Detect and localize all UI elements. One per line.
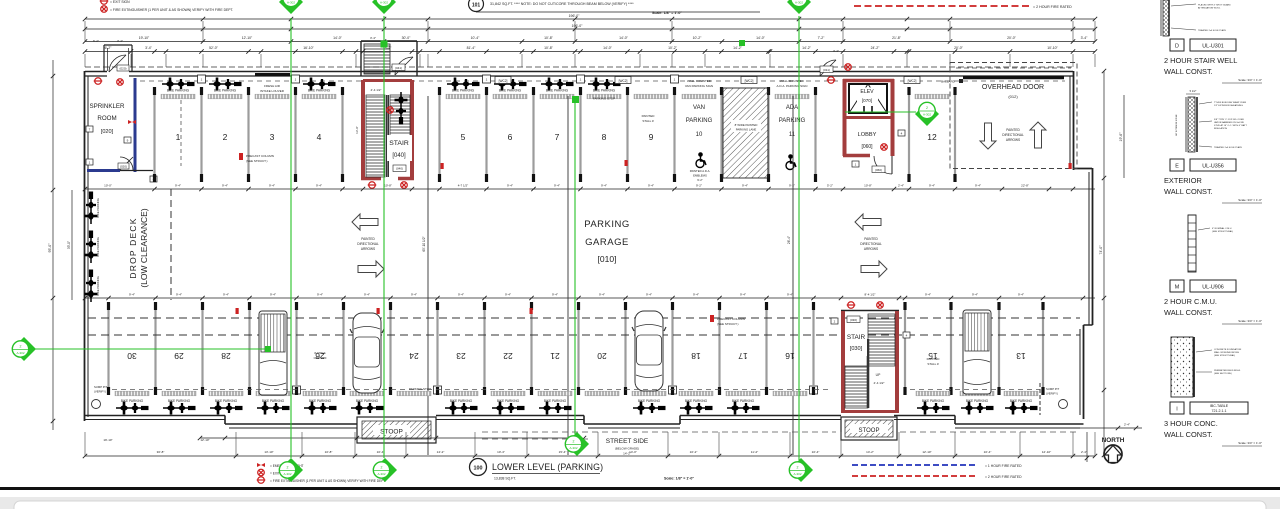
svg-text:VAPOR BARRIER ON 2x6 WD: VAPOR BARRIER ON 2x6 WD (1214, 121, 1245, 124)
svg-text:52'-0": 52'-0" (209, 46, 218, 50)
svg-text:PAINTED: PAINTED (361, 237, 375, 241)
svg-text:10'-8": 10'-8" (325, 450, 333, 454)
svg-text:14'-2": 14'-2" (866, 450, 874, 454)
svg-text:2 HOUR C.M.U.: 2 HOUR C.M.U. (1164, 297, 1217, 306)
svg-text:12: 12 (927, 132, 937, 142)
svg-text:6" NOMINAL C.M.U.: 6" NOMINAL C.M.U. (1212, 227, 1232, 230)
svg-text:9'-4": 9'-4" (223, 293, 229, 297)
svg-text:PERIMETER RIGID INSUL: PERIMETER RIGID INSUL (1214, 370, 1241, 372)
svg-text:11: 11 (789, 132, 796, 138)
svg-text:21: 21 (550, 351, 560, 361)
svg-text:100: 100 (474, 466, 483, 472)
svg-text:(SEE STRUCTURAL): (SEE STRUCTURAL) (1212, 230, 1233, 233)
svg-text:WALL MOUNTED: WALL MOUNTED (687, 79, 712, 83)
svg-text:9'-4": 9'-4" (787, 293, 793, 297)
svg-text:14'-0": 14'-0" (629, 450, 637, 454)
svg-text:9'-4": 9'-4" (316, 184, 322, 188)
svg-text:UL-U356: UL-U356 (1202, 164, 1224, 170)
svg-text:10'-0": 10'-0" (104, 184, 112, 188)
svg-text:8: 8 (602, 132, 607, 142)
svg-text:10'-2": 10'-2" (693, 36, 702, 40)
svg-text:DIRECTIONAL: DIRECTIONAL (860, 242, 882, 246)
svg-text:Scale: 3/4" = 1'-0": Scale: 3/4" = 1'-0" (1238, 319, 1262, 323)
svg-text:PARKING STOP: PARKING STOP (593, 97, 615, 101)
svg-text:PAINTED A.D.A.: PAINTED A.D.A. (690, 169, 711, 173)
svg-text:4'-4 1/2": 4'-4 1/2" (874, 381, 885, 385)
svg-text:16: 16 (785, 351, 795, 361)
svg-text:20: 20 (597, 351, 607, 361)
svg-text:30'-0": 30'-0" (402, 36, 411, 40)
svg-text:NORTH: NORTH (1102, 437, 1125, 444)
svg-text:PLACED WITH 4" SHOT GUARD: PLACED WITH 4" SHOT GUARD (1198, 4, 1231, 7)
svg-text:18: 18 (691, 351, 701, 361)
svg-text:[030]: [030] (850, 346, 863, 352)
svg-text:ARROWS: ARROWS (864, 247, 878, 251)
svg-text:BIKE PARKING: BIKE PARKING (593, 89, 616, 93)
svg-text:9'-4": 9'-4" (1018, 293, 1024, 297)
svg-text:ARROWS: ARROWS (1006, 138, 1020, 142)
svg-text:BIKE PARKING: BIKE PARKING (499, 89, 522, 93)
svg-text:DROP DECK: DROP DECK (128, 217, 138, 278)
svg-text:2'-4": 2'-4" (1124, 423, 1130, 427)
svg-text:PARKING: PARKING (584, 219, 630, 230)
svg-text:4: 4 (317, 132, 322, 142)
svg-text:9'-4": 9'-4" (740, 293, 746, 297)
svg-text:9'-4": 9'-4" (601, 184, 607, 188)
svg-text:21'-8": 21'-8" (892, 36, 901, 40)
svg-text:5/8" TYPE 'C' GYP. BD. OVER: 5/8" TYPE 'C' GYP. BD. OVER (1214, 119, 1244, 121)
svg-text:ARROWS: ARROWS (361, 247, 375, 251)
svg-text:2 HOUR STAIR WELL: 2 HOUR STAIR WELL (1164, 56, 1237, 65)
svg-text:(040): (040) (396, 167, 403, 171)
svg-text:16'-10": 16'-10" (303, 46, 314, 50)
svg-text:STALL #: STALL # (642, 119, 654, 123)
svg-text:DIRECTIONAL: DIRECTIONAL (1002, 133, 1024, 137)
svg-text:PRECAST COLUMN: PRECAST COLUMN (717, 317, 745, 321)
svg-text:IBC-TABLE: IBC-TABLE (1210, 404, 1229, 408)
svg-text:ROOM: ROOM (97, 115, 116, 122)
svg-text:22: 22 (503, 351, 513, 361)
svg-text:FRESH AIR: FRESH AIR (264, 84, 281, 88)
svg-text:(SEE STRUCT.): (SEE STRUCT.) (717, 322, 739, 326)
svg-text:19'-10": 19'-10" (103, 438, 112, 442)
svg-text:81'-4": 81'-4" (467, 46, 476, 50)
svg-text:9'-4": 9'-4" (742, 184, 748, 188)
svg-text:TYVEK BUILDING WRAP OVER: TYVEK BUILDING WRAP OVER (1214, 101, 1246, 104)
svg-text:= EXIT SIGN: = EXIT SIGN (110, 0, 130, 4)
svg-text:= 2 HOUR FIRE RATED: = 2 HOUR FIRE RATED (1033, 5, 1072, 9)
svg-text:M: M (1175, 285, 1180, 291)
svg-text:9'-4": 9'-4" (175, 184, 181, 188)
svg-text:STOOP: STOOP (859, 428, 880, 434)
svg-text:9'-4": 9'-4" (693, 293, 699, 297)
svg-text:[070]: [070] (862, 98, 872, 103)
svg-text:(SEE SECTIONS): (SEE SECTIONS) (1214, 373, 1232, 375)
svg-text:DIRECTIONAL: DIRECTIONAL (357, 242, 379, 246)
svg-text:14'-2": 14'-2" (437, 450, 445, 454)
svg-text:(SEE STRUCTURAL): (SEE STRUCTURAL) (1214, 354, 1235, 357)
svg-text:PARKING: PARKING (779, 118, 806, 124)
svg-text:[060]: [060] (861, 144, 873, 150)
svg-text:6'-2": 6'-2" (105, 46, 113, 50)
svg-text:STALL #: STALL # (314, 351, 326, 355)
svg-text:10'-8": 10'-8" (864, 184, 872, 188)
svg-text:BIKE PARKING: BIKE PARKING (452, 89, 475, 93)
svg-text:12'-10": 12'-10" (922, 450, 931, 454)
svg-text:PAINTED: PAINTED (864, 237, 878, 241)
svg-text:12'-10": 12'-10" (200, 438, 209, 442)
svg-text:12'-10": 12'-10" (1042, 450, 1051, 454)
svg-text:(VERIFY): (VERIFY) (94, 390, 106, 394)
svg-text:5 1/2": 5 1/2" (1190, 89, 1197, 93)
svg-text:WALL CONST.: WALL CONST. (1164, 308, 1213, 317)
svg-text:23: 23 (456, 351, 466, 361)
svg-text:20'-0": 20'-0" (1007, 36, 1016, 40)
svg-text:6'-2": 6'-2" (93, 39, 99, 43)
svg-text:BIT EXTERIOR SCENE: BIT EXTERIOR SCENE (1176, 114, 1178, 136)
svg-text:PAINTED: PAINTED (642, 114, 656, 118)
svg-text:3'-4": 3'-4" (117, 39, 123, 43)
svg-text:9'-4": 9'-4" (599, 293, 605, 297)
svg-text:13,838 SQ.FT.: 13,838 SQ.FT. (494, 477, 516, 481)
svg-text:[WC2]: [WC2] (619, 79, 628, 83)
svg-text:PRECAST COLUMN: PRECAST COLUMN (246, 154, 274, 158)
svg-text:BIKE PARKING: BIKE PARKING (546, 89, 569, 93)
svg-text:STAIR: STAIR (389, 140, 409, 147)
svg-text:22'-8": 22'-8" (1021, 184, 1029, 188)
svg-text:BIKE PARKING: BIKE PARKING (96, 276, 100, 296)
svg-text:= 2 HOUR FIRE RATED: = 2 HOUR FIRE RATED (985, 475, 1022, 479)
svg-text:10'-4": 10'-4" (984, 450, 992, 454)
svg-text:PARKING: PARKING (686, 118, 713, 124)
svg-text:10'-4": 10'-4" (497, 450, 505, 454)
svg-text:3'-4": 3'-4" (833, 49, 839, 53)
svg-text:Scale: 3/4" = 1'-0": Scale: 3/4" = 1'-0" (1238, 441, 1262, 445)
svg-text:= FIRE EXTINGUISHER (1 PER UNI: = FIRE EXTINGUISHER (1 PER UNIT & AS SHO… (110, 8, 233, 12)
svg-text:12'-10": 12'-10" (242, 36, 253, 40)
svg-text:101: 101 (472, 3, 481, 9)
svg-text:10'-8": 10'-8" (384, 184, 392, 188)
svg-text:13'-10": 13'-10" (264, 450, 273, 454)
svg-text:(011): (011) (823, 68, 830, 72)
svg-text:196'-0": 196'-0" (569, 14, 581, 18)
svg-text:[010]: [010] (598, 254, 617, 264)
svg-text:LOBBY: LOBBY (858, 132, 877, 138)
svg-text:10'-4": 10'-4" (471, 36, 480, 40)
svg-text:[WC2]: [WC2] (499, 79, 508, 83)
svg-text:E: E (1175, 164, 1179, 170)
svg-text:(020): (020) (119, 67, 126, 71)
svg-text:95'-0": 95'-0" (48, 243, 52, 253)
svg-text:6: 6 (508, 132, 513, 142)
svg-text:28: 28 (221, 351, 231, 361)
svg-text:Scale: 3/4" = 1'-0": Scale: 3/4" = 1'-0" (1238, 78, 1262, 82)
svg-text:(LOW CLEARANCE): (LOW CLEARANCE) (139, 208, 149, 288)
svg-text:2: 2 (223, 132, 228, 142)
svg-text:9'-4": 9'-4" (972, 293, 978, 297)
svg-text:5: 5 (461, 132, 466, 142)
svg-text:(012): (012) (1008, 94, 1018, 99)
svg-text:3'-4": 3'-4" (145, 46, 153, 50)
svg-text:Scale: 1/8" = 1'-0": Scale: 1/8" = 1'-0" (652, 11, 682, 15)
svg-text:10'-10": 10'-10" (1047, 46, 1058, 50)
svg-text:9'-4": 9'-4" (648, 184, 654, 188)
svg-text:8' WIDE PAINTED: 8' WIDE PAINTED (735, 123, 758, 127)
svg-text:74'-0": 74'-0" (1099, 245, 1103, 255)
svg-text:9: 9 (649, 132, 654, 142)
svg-text:OVERHEAD DOOR: OVERHEAD DOOR (982, 84, 1044, 91)
svg-text:PARKING STOP: PARKING STOP (409, 387, 431, 391)
svg-text:4'-4 1/2": 4'-4 1/2" (371, 88, 382, 92)
svg-text:14'-2": 14'-2" (802, 46, 811, 50)
svg-text:STREET SIDE: STREET SIDE (606, 438, 649, 445)
svg-text:8'-4 1/2": 8'-4 1/2" (865, 293, 876, 297)
svg-text:UL-U301: UL-U301 (1202, 44, 1224, 50)
svg-text:VAN PARKING SIGN: VAN PARKING SIGN (685, 84, 713, 88)
svg-text:UL-U906: UL-U906 (1202, 285, 1224, 291)
svg-text:GARAGE: GARAGE (585, 237, 629, 248)
svg-text:9'-4": 9'-4" (364, 293, 370, 297)
svg-text:[WC2]: [WC2] (745, 79, 754, 83)
svg-text:BIKE PARKING: BIKE PARKING (96, 237, 100, 257)
svg-text:Scale: 1/8" = 1'-0": Scale: 1/8" = 1'-0" (664, 477, 694, 481)
svg-text:9'-4": 9'-4" (411, 293, 417, 297)
svg-text:WALL W/ REINFORCING: WALL W/ REINFORCING (1214, 351, 1239, 354)
svg-text:LOWER LEVEL (PARKING): LOWER LEVEL (PARKING) (492, 462, 603, 472)
svg-text:3'-4": 3'-4" (1081, 36, 1089, 40)
svg-text:INTAKE LOUVER: INTAKE LOUVER (260, 89, 285, 93)
svg-text:ADA: ADA (786, 105, 798, 111)
svg-text:9'-4": 9'-4" (507, 184, 513, 188)
svg-text:BIKE PARKING: BIKE PARKING (167, 89, 190, 93)
svg-text:PAINTED: PAINTED (313, 356, 327, 360)
svg-text:30: 30 (127, 351, 137, 361)
svg-text:SPRINKLER: SPRINKLER (89, 103, 125, 110)
svg-text:65'-10 1/2": 65'-10 1/2" (422, 236, 426, 251)
svg-text:30'-8": 30'-8" (157, 450, 165, 454)
svg-text:STALL #: STALL # (927, 362, 939, 366)
svg-text:PAINTED: PAINTED (927, 357, 941, 361)
svg-text:14'-0": 14'-0" (333, 36, 342, 40)
svg-text:10'-8": 10'-8" (544, 36, 553, 40)
svg-text:TREATED 2x6 SOLE PLATE: TREATED 2x6 SOLE PLATE (1214, 146, 1243, 149)
svg-text:2'-4": 2'-4" (898, 184, 904, 188)
svg-text:PARKING LANE: PARKING LANE (736, 128, 757, 132)
svg-text:(060): (060) (875, 168, 882, 172)
svg-text:26'-4": 26'-4" (787, 236, 791, 244)
svg-text:STAIR: STAIR (847, 334, 866, 341)
svg-text:10'-4": 10'-4" (812, 450, 820, 454)
svg-text:[040]: [040] (392, 153, 406, 159)
svg-text:(030): (030) (850, 318, 857, 322)
svg-text:BIKE PARKING: BIKE PARKING (308, 89, 331, 93)
svg-text:9'-4": 9'-4" (552, 293, 558, 297)
svg-text:STUD AT 16" O.C. WITH 6" BATT: STUD AT 16" O.C. WITH 6" BATT (1214, 124, 1247, 127)
svg-text:11'-2": 11'-2" (751, 450, 758, 454)
svg-text:9'-2": 9'-2" (696, 184, 702, 188)
svg-text:1/2" EXTERIOR SHEATHING: 1/2" EXTERIOR SHEATHING (1214, 104, 1243, 107)
svg-text:EMBLEMS: EMBLEMS (693, 174, 707, 178)
svg-text:D: D (1175, 44, 1179, 50)
svg-text:WALL CONST.: WALL CONST. (1164, 67, 1213, 76)
svg-text:9'-4": 9'-4" (269, 184, 275, 188)
svg-text:ATTENUATION WOOL: ATTENUATION WOOL (1198, 7, 1221, 10)
svg-text:7: 7 (555, 132, 560, 142)
svg-text:SUMP PIT: SUMP PIT (1046, 387, 1059, 391)
svg-text:WALL MOUNTED: WALL MOUNTED (780, 79, 805, 83)
svg-text:I: I (1176, 407, 1178, 413)
svg-text:14'-2": 14'-2" (733, 46, 742, 50)
svg-text:9'-4": 9'-4" (176, 293, 182, 297)
svg-text:PAINTED: PAINTED (1006, 128, 1020, 132)
svg-text:9'-2": 9'-2" (789, 184, 795, 188)
svg-text:10: 10 (696, 132, 703, 138)
svg-text:19'-6": 19'-6" (1119, 132, 1123, 142)
svg-text:17: 17 (738, 351, 748, 361)
svg-text:14'-0": 14'-0" (603, 46, 612, 50)
svg-text:29: 29 (174, 351, 184, 361)
svg-text:196'-0": 196'-0" (572, 24, 584, 28)
svg-text:CONCRETE FOUNDATION: CONCRETE FOUNDATION (1214, 348, 1242, 351)
svg-text:31,842 SQ.FT. **** NOTE: DO: 31,842 SQ.FT. **** NOTE: DO NOT CUT/CORE… (490, 2, 634, 6)
svg-text:13: 13 (1016, 351, 1026, 361)
svg-text:[WC2]: [WC2] (908, 79, 917, 83)
svg-text:(SEE STRUCT.): (SEE STRUCT.) (246, 159, 268, 163)
svg-text:(VERIFY): (VERIFY) (1046, 392, 1058, 396)
svg-text:BALLARD: BALLARD (941, 80, 956, 84)
svg-text:15'-4": 15'-4" (559, 450, 567, 454)
svg-text:10'-8": 10'-8" (544, 46, 553, 50)
svg-text:24'-2": 24'-2" (871, 46, 880, 50)
svg-text:9'-2": 9'-2" (697, 178, 703, 182)
svg-text:14'-0": 14'-0" (619, 36, 628, 40)
svg-text:9'-4": 9'-4" (646, 293, 652, 297)
svg-text:5'-2": 5'-2" (827, 184, 833, 188)
svg-text:9'-4": 9'-4" (929, 184, 935, 188)
svg-text:19'-10": 19'-10" (139, 36, 150, 40)
svg-text:BIKE PARKING: BIKE PARKING (214, 89, 237, 93)
svg-text:10'-4": 10'-4" (377, 450, 385, 454)
svg-text:= 1 HOUR FIRE RATED: = 1 HOUR FIRE RATED (985, 464, 1022, 468)
svg-text:WALL CONST.: WALL CONST. (1164, 430, 1213, 439)
svg-text:1: 1 (176, 132, 181, 142)
svg-text:3: 3 (270, 132, 275, 142)
svg-text:A.D.A. PARKING SIGN: A.D.A. PARKING SIGN (777, 84, 808, 88)
svg-text:3 HOUR CONC.: 3 HOUR CONC. (1164, 419, 1218, 428)
svg-text:WALL CONST.: WALL CONST. (1164, 187, 1213, 196)
svg-text:VAN: VAN (693, 105, 705, 111)
svg-text:33'-0": 33'-0" (67, 241, 71, 249)
svg-text:INSULATION: INSULATION (1214, 127, 1227, 130)
svg-text:TREATED 2x6 SOLE PLATE: TREATED 2x6 SOLE PLATE (1198, 29, 1227, 32)
svg-text:4-7 1/2": 4-7 1/2" (458, 184, 468, 188)
svg-text:20'-0": 20'-0" (954, 46, 963, 50)
svg-text:BIKE PARKING: BIKE PARKING (96, 198, 100, 218)
svg-text:= FIRE EXTINGUISHER (1 PER UNI: = FIRE EXTINGUISHER (1 PER UNIT & AS SHO… (270, 479, 386, 483)
svg-text:721.2.1.1: 721.2.1.1 (1212, 409, 1227, 413)
svg-text:9'-4": 9'-4" (270, 293, 276, 297)
svg-text:13'-9": 13'-9" (355, 126, 359, 134)
svg-text:3'-4": 3'-4" (370, 36, 376, 40)
svg-text:SUMP PIT: SUMP PIT (94, 385, 107, 389)
svg-text:14'-0": 14'-0" (756, 36, 765, 40)
svg-text:9'-4": 9'-4" (554, 184, 560, 188)
svg-text:7'-2": 7'-2" (818, 36, 826, 40)
svg-text:9'-4": 9'-4" (925, 293, 931, 297)
svg-text:9'-4": 9'-4" (458, 293, 464, 297)
svg-text:9'-4": 9'-4" (505, 293, 511, 297)
svg-text:(020): (020) (120, 165, 127, 169)
svg-text:[020]: [020] (101, 129, 114, 135)
svg-text:Scale: 3/4" = 1'-0": Scale: 3/4" = 1'-0" (1238, 198, 1262, 202)
svg-text:2'-4": 2'-4" (1081, 450, 1087, 454)
svg-text:9'-4": 9'-4" (129, 293, 135, 297)
svg-text:10'-2": 10'-2" (690, 450, 698, 454)
svg-text:ELEV: ELEV (860, 89, 874, 95)
svg-text:UP: UP (876, 373, 881, 377)
svg-text:9'-4": 9'-4" (975, 184, 981, 188)
svg-text:EXTERIOR: EXTERIOR (1164, 176, 1202, 185)
svg-text:9'-4": 9'-4" (222, 184, 228, 188)
svg-text:9'-4": 9'-4" (317, 293, 323, 297)
svg-text:24: 24 (409, 351, 419, 361)
svg-text:(041): (041) (395, 66, 402, 70)
